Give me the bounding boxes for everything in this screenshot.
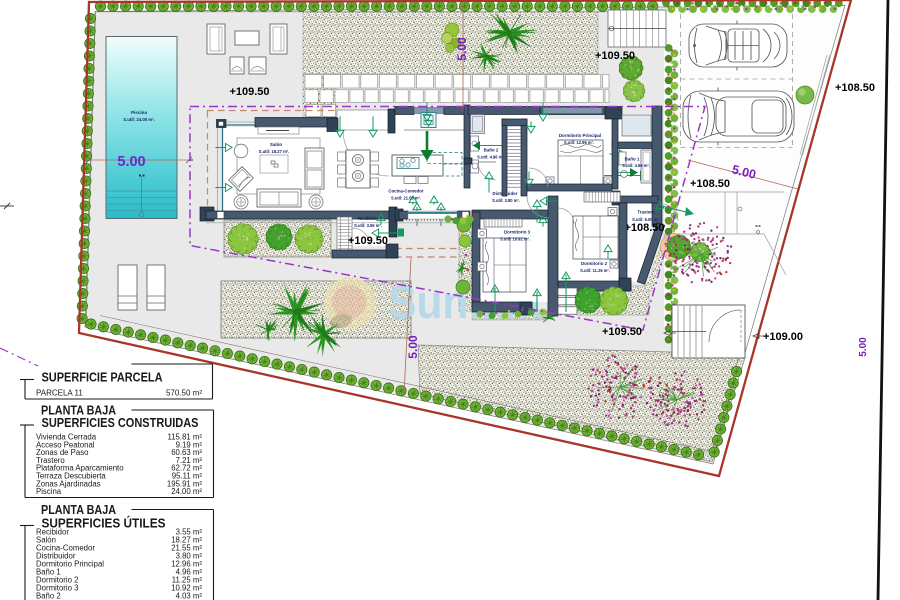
- svg-text:S.util: 10.92 m².: S.util: 10.92 m².: [500, 237, 530, 242]
- svg-text:S.util: 12.96 m².: S.util: 12.96 m².: [564, 140, 594, 145]
- svg-text:Dormitorio 2: Dormitorio 2: [581, 261, 608, 266]
- svg-text:5.00: 5.00: [117, 154, 145, 170]
- svg-text:SUPERFICIES CONSTRUIDAS: SUPERFICIES CONSTRUIDAS: [42, 415, 199, 430]
- svg-text:Baño 1: Baño 1: [625, 157, 640, 162]
- svg-text:+109.50: +109.50: [348, 235, 388, 247]
- svg-text:S.util: 24.00 m².: S.util: 24.00 m².: [123, 117, 155, 122]
- svg-text:Cocina-Comedor: Cocina-Comedor: [388, 189, 424, 194]
- svg-text:+108.50: +108.50: [835, 82, 875, 94]
- svg-text:5.00: 5.00: [455, 37, 469, 61]
- svg-text:+108.50: +108.50: [624, 222, 664, 234]
- svg-text:S.util: 3.55 m².: S.util: 3.55 m².: [354, 223, 382, 228]
- svg-text:+109.50: +109.50: [602, 326, 642, 338]
- svg-text:+109.50: +109.50: [229, 86, 269, 98]
- svg-text:Piscina: Piscina: [36, 487, 62, 496]
- svg-text:Trastero: Trastero: [637, 210, 655, 215]
- svg-text:S.util: 4.96 m².: S.util: 4.96 m².: [477, 155, 505, 160]
- svg-text:Salón: Salón: [270, 142, 283, 147]
- svg-text:S.util: 11.25 m².: S.util: 11.25 m².: [580, 268, 610, 273]
- svg-text:S.util: 3.80 m².: S.util: 3.80 m².: [492, 198, 520, 203]
- svg-text:S.util: 18.27 m².: S.util: 18.27 m².: [259, 149, 290, 154]
- svg-text:SUPERFICIE PARCELA: SUPERFICIE PARCELA: [42, 370, 164, 385]
- svg-text:5.00: 5.00: [858, 337, 869, 357]
- svg-text:PARCELA 11: PARCELA 11: [36, 389, 83, 398]
- svg-text:Baño 2: Baño 2: [36, 592, 61, 600]
- svg-text:+109.00: +109.00: [763, 331, 803, 343]
- svg-text:5.00: 5.00: [406, 335, 420, 359]
- svg-text:570.50 m²: 570.50 m²: [166, 389, 202, 398]
- svg-text:S.util: 4.96 m².: S.util: 4.96 m².: [622, 163, 650, 168]
- svg-text:4.03 m²: 4.03 m²: [176, 592, 203, 600]
- svg-text:S.util: 21.55 m².: S.util: 21.55 m².: [391, 196, 421, 201]
- svg-text:+108.50: +108.50: [690, 178, 730, 190]
- svg-text:Piscina: Piscina: [131, 110, 148, 115]
- svg-text:Recibidor: Recibidor: [358, 216, 379, 221]
- svg-text:Dormitorio 3: Dormitorio 3: [504, 230, 531, 235]
- svg-text:24.00 m²: 24.00 m²: [171, 487, 202, 496]
- svg-text:+109.50: +109.50: [595, 50, 635, 62]
- svg-text:Baño 2: Baño 2: [484, 148, 499, 153]
- svg-text:Dormitorio Principal: Dormitorio Principal: [559, 133, 601, 138]
